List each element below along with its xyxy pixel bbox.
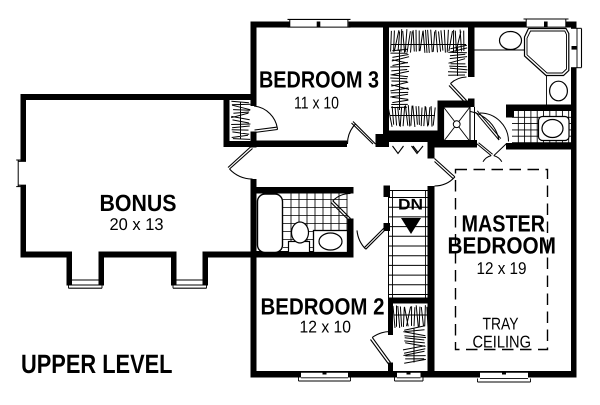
svg-text:12 x 10: 12 x 10 [300, 318, 352, 337]
svg-text:BEDROOM: BEDROOM [448, 233, 557, 259]
svg-text:11 x 10: 11 x 10 [294, 94, 339, 113]
svg-text:DN: DN [398, 197, 423, 214]
svg-text:20 x 13: 20 x 13 [110, 215, 164, 234]
svg-text:CEILING: CEILING [473, 333, 532, 352]
svg-text:UPPER LEVEL: UPPER LEVEL [21, 349, 173, 379]
svg-text:TRAY: TRAY [483, 315, 519, 334]
svg-text:BEDROOM 3: BEDROOM 3 [259, 67, 379, 93]
svg-text:BONUS: BONUS [100, 190, 177, 216]
svg-text:BEDROOM 2: BEDROOM 2 [261, 294, 385, 320]
svg-text:12 x 19: 12 x 19 [477, 259, 527, 278]
